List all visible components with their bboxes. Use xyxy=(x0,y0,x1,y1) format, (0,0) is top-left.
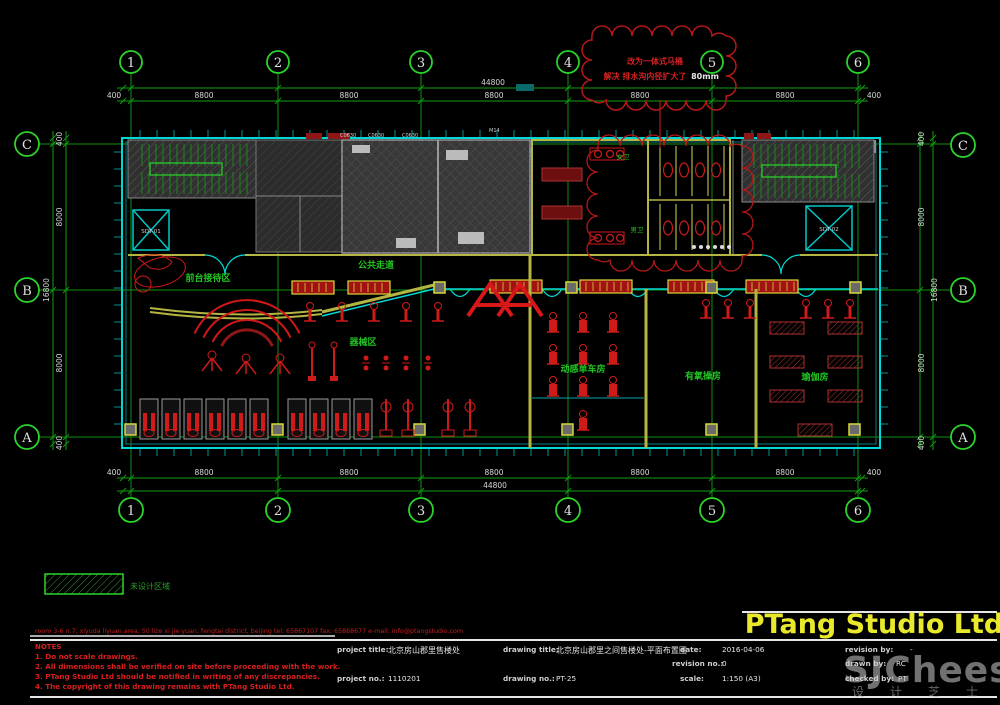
grid-bubble-A-right: A xyxy=(957,431,968,446)
window-tag: C0630 xyxy=(368,133,384,139)
dim-top: 8800 xyxy=(194,91,213,100)
drawing-title-label: drawing title: xyxy=(503,645,559,654)
dim-bottom: 8800 xyxy=(484,468,503,477)
grid-bubble-5-top: 5 xyxy=(708,56,716,71)
grid-bubble-5-bottom: 5 xyxy=(708,504,716,519)
dim-left: 400 xyxy=(55,132,64,147)
window-tag: C0630 xyxy=(340,133,356,139)
room-label-aerobics: 有氧操房 xyxy=(685,370,721,382)
note-line: 3. PTang Studio Ltd should be notified i… xyxy=(35,672,320,681)
revision-no-value: 0 xyxy=(722,659,727,668)
legend: 未设计区域 xyxy=(45,574,170,594)
dim-top: 8800 xyxy=(484,91,503,100)
grid-bubble-B-right: B xyxy=(958,284,968,299)
dim-overall-left: 16800 xyxy=(42,278,51,302)
grid-bubble-4-bottom: 4 xyxy=(564,504,572,519)
mech-rooms: C0630 C0630 C0630 M14 xyxy=(340,128,530,253)
date-label: date: xyxy=(680,645,702,654)
grid-bubble-6-bottom: 6 xyxy=(854,504,862,519)
grid-bubble-3-bottom: 3 xyxy=(417,504,425,519)
dim-top: 8800 xyxy=(339,91,358,100)
dim-top: 8800 xyxy=(775,91,794,100)
dim-top: 400 xyxy=(107,91,122,100)
drawing-title-value: 北京房山郡里之间售楼处-平面布置图 xyxy=(556,645,687,655)
grid-bubble-C-right: C xyxy=(958,139,968,154)
toilet-area xyxy=(532,140,733,255)
room-label-yoga: 瑜伽房 xyxy=(801,371,828,383)
project-no-label: project no.: xyxy=(337,674,385,683)
note-line: 2. All dimensions shall be verified on s… xyxy=(35,662,340,671)
cad-drawing-viewport: 1 2 3 4 5 6 1 2 3 4 5 6 C B A C B A 4480… xyxy=(0,0,1000,705)
cloud-note-highlight: 80mm xyxy=(691,72,719,81)
dim-overall-right: 16800 xyxy=(930,278,939,302)
scale-value: 1:150 (A3) xyxy=(722,674,761,683)
room-label-toilet-m: 男卫 xyxy=(631,226,645,234)
dim-top: 400 xyxy=(867,91,882,100)
window-tag: C0630 xyxy=(402,133,418,139)
note-line: 1. Do not scale drawings. xyxy=(35,652,138,661)
studio-name: PTang Studio Ltd xyxy=(745,609,1000,640)
door-tag: M14 xyxy=(489,128,500,134)
room-label-equipment: 器械区 xyxy=(348,336,376,348)
stair-left xyxy=(128,140,342,252)
grid-bubble-1-bottom: 1 xyxy=(127,504,135,519)
grid-bubble-B-left: B xyxy=(22,284,32,299)
address-line: room 3-6 n.7, xiyuda liyuan area, 50 liz… xyxy=(35,627,463,635)
dim-bottom: 8800 xyxy=(194,468,213,477)
dim-right: 8000 xyxy=(917,353,926,372)
reception xyxy=(131,252,299,346)
cloud-note-line2: 解决 排水沟内径扩大了 xyxy=(604,71,687,81)
project-title-value: 北京房山郡里售楼处 xyxy=(388,645,460,655)
project-no-value: 1110201 xyxy=(388,674,421,683)
dim-left: 8000 xyxy=(55,353,64,372)
drawing-no-value: PT-25 xyxy=(556,674,576,683)
dim-right: 400 xyxy=(917,132,926,147)
dim-bottom: 8800 xyxy=(775,468,794,477)
cloud-note-line1: 改为一体式马桶 xyxy=(627,56,683,66)
dim-left: 400 xyxy=(55,436,64,451)
elevator-right-label: SDT-02 xyxy=(819,227,839,233)
dim-right: 400 xyxy=(917,436,926,451)
elevator-left-label: SDT-01 xyxy=(141,229,161,235)
revision-no-label: revision no.: xyxy=(672,659,723,668)
dim-overall-top: 44800 xyxy=(481,78,505,87)
dim-left: 8000 xyxy=(55,207,64,226)
room-label-reception: 前台接待区 xyxy=(185,272,230,284)
dim-bottom: 400 xyxy=(867,468,882,477)
room-label-toilet-f: 女卫 xyxy=(617,152,631,161)
date-value: 2016-04-06 xyxy=(722,645,765,654)
grid-bubble-4-top: 4 xyxy=(564,56,572,71)
grid-bubble-6-top: 6 xyxy=(854,56,862,71)
dim-bottom: 400 xyxy=(107,468,122,477)
dim-right: 8000 xyxy=(917,207,926,226)
dim-bottom: 8800 xyxy=(630,468,649,477)
drawing-no-label: drawing no.: xyxy=(503,674,555,683)
grid-bubble-1-top: 1 xyxy=(127,56,135,71)
grid-bubble-2-top: 2 xyxy=(274,56,282,71)
notes-header: NOTES xyxy=(35,643,61,651)
note-line: 4. The copyright of this drawing remains… xyxy=(35,682,294,691)
watermark-caption: 设计芝士 xyxy=(852,683,1000,700)
dim-bottom: 8800 xyxy=(339,468,358,477)
grid-bubble-A-left: A xyxy=(21,431,32,446)
grid-bubble-C-left: C xyxy=(22,138,32,153)
project-title-label: project title: xyxy=(337,645,389,654)
scale-label: scale: xyxy=(680,674,704,683)
grid-bubble-3-top: 3 xyxy=(417,56,425,71)
dim-overall-bottom: 44800 xyxy=(483,481,507,490)
room-label-corridor: 公共走道 xyxy=(358,259,394,271)
grid-bubble-2-bottom: 2 xyxy=(274,504,282,519)
floor-plan-svg: 1 2 3 4 5 6 1 2 3 4 5 6 C B A C B A 4480… xyxy=(0,0,1000,705)
room-label-spinning: 动感单车房 xyxy=(560,363,605,375)
dim-top: 8800 xyxy=(630,91,649,100)
legend-label: 未设计区域 xyxy=(130,581,170,591)
